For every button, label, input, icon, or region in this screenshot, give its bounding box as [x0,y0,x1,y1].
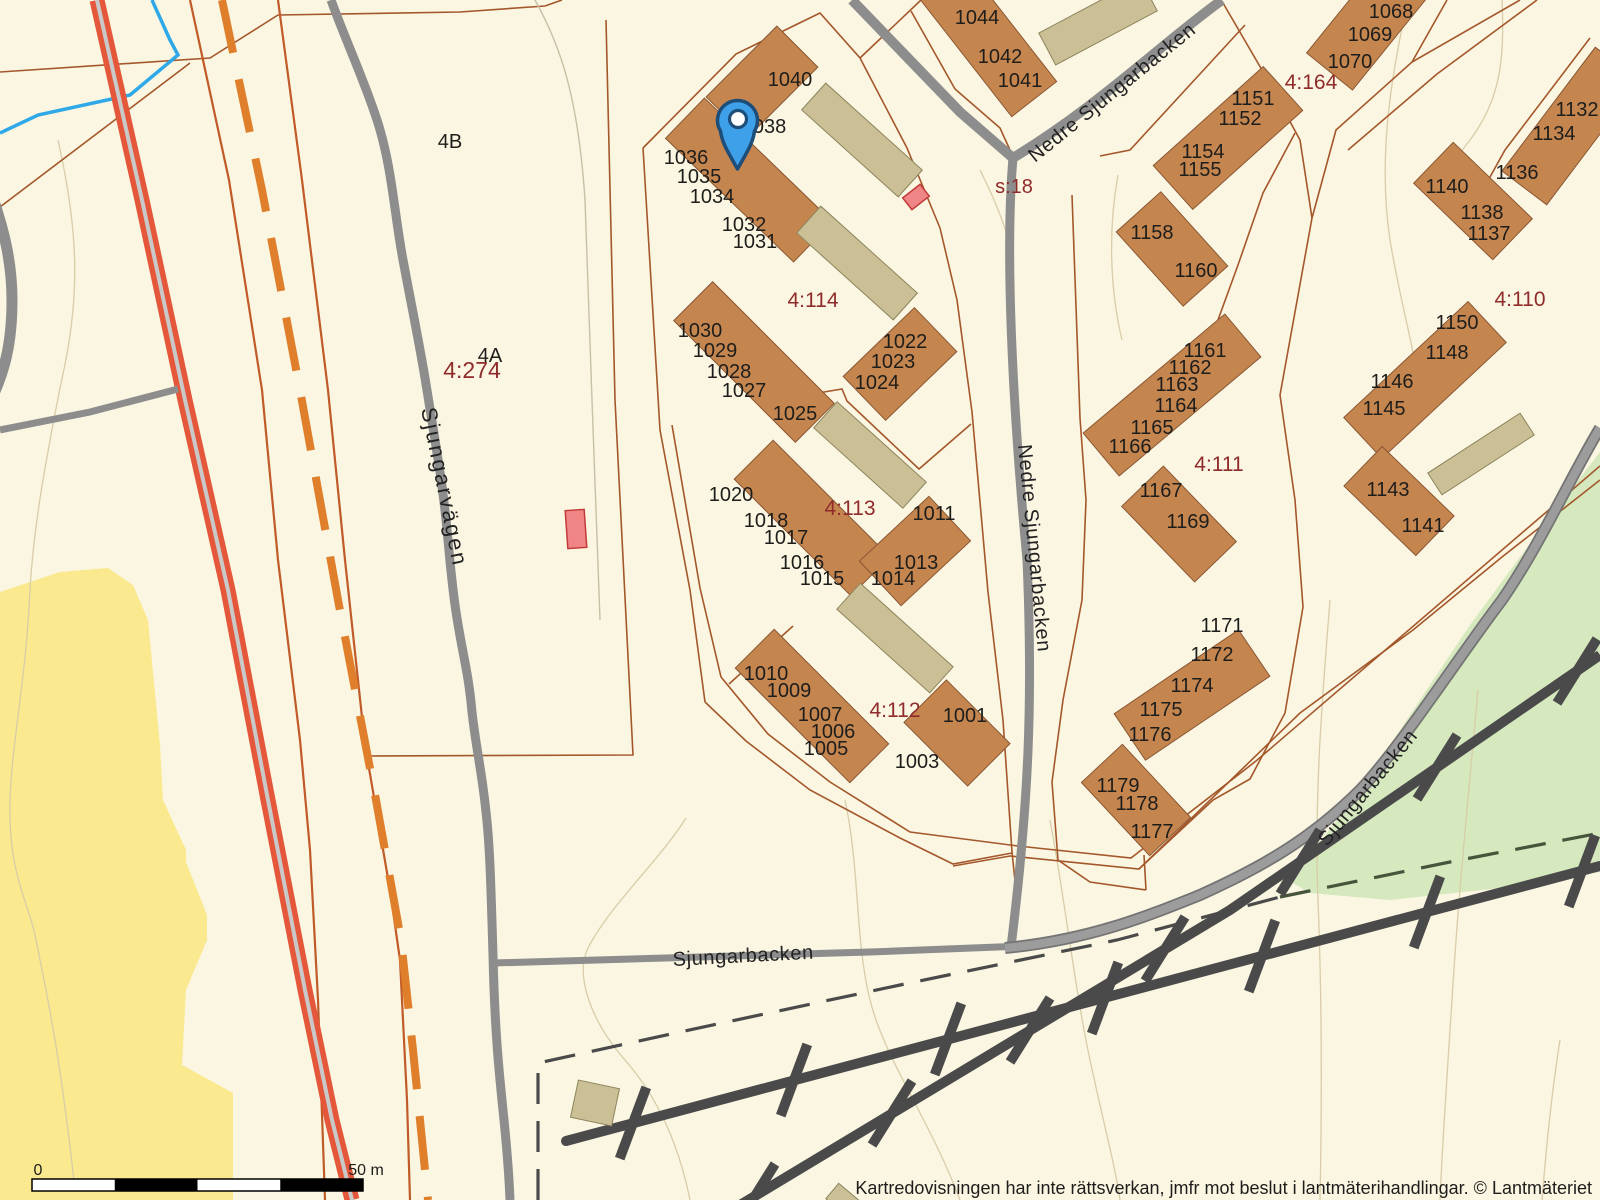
svg-text:1166: 1166 [1108,436,1151,458]
svg-text:1151: 1151 [1231,88,1274,110]
svg-text:1175: 1175 [1139,699,1182,721]
svg-text:1141: 1141 [1401,515,1444,537]
svg-text:1148: 1148 [1425,342,1468,364]
svg-text:1167: 1167 [1139,480,1182,502]
svg-text:1136: 1136 [1495,162,1538,184]
svg-text:1030: 1030 [678,320,723,342]
svg-text:1171: 1171 [1200,615,1243,637]
svg-text:1164: 1164 [1154,395,1197,417]
svg-text:1023: 1023 [871,351,916,373]
svg-text:1155: 1155 [1178,159,1221,181]
svg-text:4:113: 4:113 [825,497,876,520]
svg-text:1134: 1134 [1532,123,1575,145]
svg-text:1158: 1158 [1130,222,1173,244]
svg-text:1068: 1068 [1369,1,1414,23]
svg-text:Kartredovisningen har inte rät: Kartredovisningen har inte rättsverkan, … [855,1178,1592,1198]
svg-text:1069: 1069 [1348,24,1393,46]
svg-text:1174: 1174 [1170,675,1213,697]
svg-text:1143: 1143 [1366,479,1409,501]
svg-text:1003: 1003 [895,751,940,773]
svg-text:1152: 1152 [1218,108,1261,130]
svg-text:1138: 1138 [1460,202,1503,224]
svg-text:1035: 1035 [677,166,722,188]
svg-text:1070: 1070 [1328,51,1373,73]
svg-text:1169: 1169 [1166,511,1209,533]
svg-text:1034: 1034 [690,186,735,208]
svg-text:1025: 1025 [773,403,818,425]
svg-text:1178: 1178 [1115,793,1158,815]
svg-text:1017: 1017 [764,527,809,549]
svg-text:1146: 1146 [1370,371,1413,393]
svg-text:1022: 1022 [883,331,928,353]
svg-text:1172: 1172 [1190,644,1233,666]
svg-text:1163: 1163 [1155,374,1198,396]
svg-text:1015: 1015 [800,568,845,590]
svg-text:1137: 1137 [1467,223,1510,245]
svg-text:4:111: 4:111 [1194,453,1243,476]
svg-text:1160: 1160 [1174,260,1217,282]
svg-text:4:112: 4:112 [870,699,921,722]
svg-text:4B: 4B [438,131,462,153]
svg-text:1145: 1145 [1362,398,1405,420]
svg-text:1041: 1041 [998,70,1043,92]
svg-text:1029: 1029 [693,340,738,362]
svg-text:1014: 1014 [871,568,916,590]
svg-text:4:110: 4:110 [1495,288,1546,311]
svg-text:1150: 1150 [1435,312,1478,334]
svg-text:1140: 1140 [1425,176,1468,198]
svg-text:1020: 1020 [709,484,754,506]
svg-text:1132: 1132 [1555,99,1598,121]
svg-text:1031: 1031 [733,231,778,253]
svg-text:1009: 1009 [767,680,812,702]
svg-text:1001: 1001 [943,705,988,727]
svg-text:4:274: 4:274 [443,357,501,383]
svg-text:1011: 1011 [912,503,955,525]
svg-text:50 m: 50 m [348,1162,384,1179]
svg-text:4:114: 4:114 [788,289,839,312]
svg-text:1176: 1176 [1128,724,1171,746]
svg-text:1040: 1040 [768,69,813,91]
svg-text:1177: 1177 [1130,821,1173,843]
svg-text:1027: 1027 [722,380,767,402]
svg-text:1024: 1024 [855,372,900,394]
svg-text:1005: 1005 [804,738,849,760]
svg-text:1042: 1042 [978,46,1023,68]
svg-text:0: 0 [34,1162,43,1179]
svg-text:4:164: 4:164 [1285,71,1338,94]
svg-text:1044: 1044 [955,7,1000,29]
svg-text:s:18: s:18 [995,176,1033,198]
